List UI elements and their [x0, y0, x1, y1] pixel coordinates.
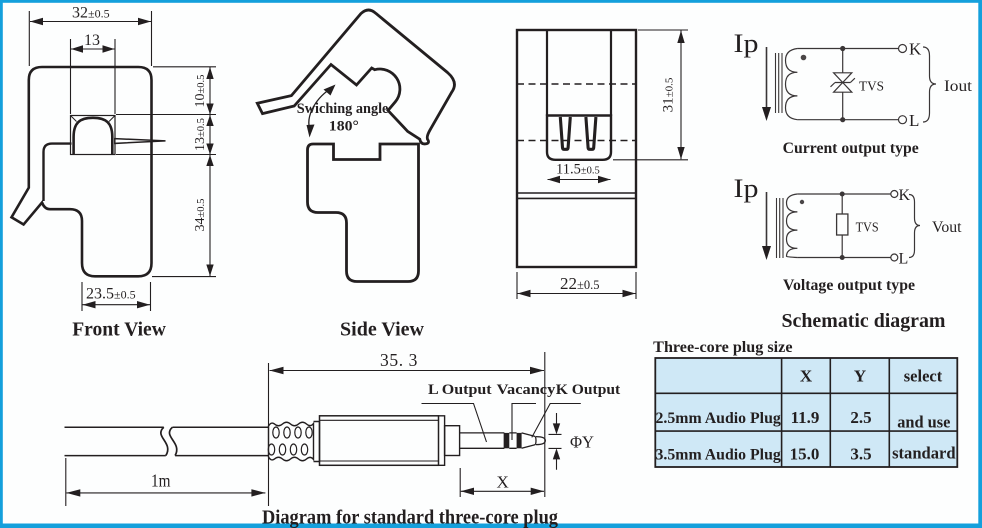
svg-text:31±0.5: 31±0.5 — [661, 77, 677, 112]
svg-text:and use: and use — [897, 413, 950, 432]
svg-text:2.5: 2.5 — [850, 408, 871, 427]
svg-text:Front View: Front View — [72, 319, 166, 341]
svg-text:34±0.5: 34±0.5 — [193, 199, 208, 232]
svg-text:Voltage output type: Voltage output type — [783, 277, 915, 294]
svg-text:3.5mm Audio Plug: 3.5mm Audio Plug — [656, 447, 781, 464]
svg-text:13: 13 — [84, 32, 100, 49]
svg-text:13±0.5: 13±0.5 — [193, 118, 208, 151]
svg-text:35. 3: 35. 3 — [380, 350, 418, 370]
svg-text:K: K — [909, 40, 922, 59]
svg-text:Side View: Side View — [340, 319, 424, 341]
svg-text:Vacancy: Vacancy — [497, 382, 556, 398]
svg-text:32±0.5: 32±0.5 — [72, 5, 110, 22]
svg-text:select: select — [904, 367, 943, 386]
svg-text:standard: standard — [892, 444, 956, 463]
svg-text:TVS: TVS — [856, 221, 879, 236]
svg-text:Vout: Vout — [932, 219, 962, 236]
svg-text:Diagram for standard three-cor: Diagram for standard three-core plug — [262, 507, 559, 528]
svg-text:Ip: Ip — [734, 174, 759, 203]
svg-text:2.5mm Audio Plug: 2.5mm Audio Plug — [656, 410, 781, 427]
svg-text:180°: 180° — [329, 119, 359, 135]
svg-text:Current output type: Current output type — [783, 140, 919, 157]
svg-text:Schematic diagram: Schematic diagram — [782, 310, 946, 332]
svg-text:3.5: 3.5 — [850, 445, 871, 464]
svg-text:L: L — [909, 111, 919, 130]
svg-text:L Output: L Output — [428, 382, 492, 398]
svg-text:Three-core plug size: Three-core plug size — [653, 339, 792, 356]
svg-text:TVS: TVS — [859, 80, 884, 95]
svg-text:Swiching angle: Swiching angle — [297, 101, 389, 117]
svg-text:Iout: Iout — [944, 78, 973, 95]
svg-text:11.9: 11.9 — [791, 408, 820, 427]
svg-text:K Output: K Output — [556, 382, 620, 398]
svg-text:Ip: Ip — [734, 29, 759, 58]
svg-text:L: L — [899, 251, 909, 268]
svg-text:1m: 1m — [151, 471, 171, 491]
svg-text:Y: Y — [854, 367, 866, 386]
svg-text:ΦY: ΦY — [570, 433, 594, 452]
svg-text:K: K — [899, 187, 911, 204]
svg-text:10±0.5: 10±0.5 — [193, 75, 208, 108]
svg-text:15.0: 15.0 — [790, 445, 820, 464]
svg-text:X: X — [497, 473, 509, 492]
svg-text:23.5±0.5: 23.5±0.5 — [86, 286, 136, 303]
svg-text:X: X — [800, 367, 813, 386]
